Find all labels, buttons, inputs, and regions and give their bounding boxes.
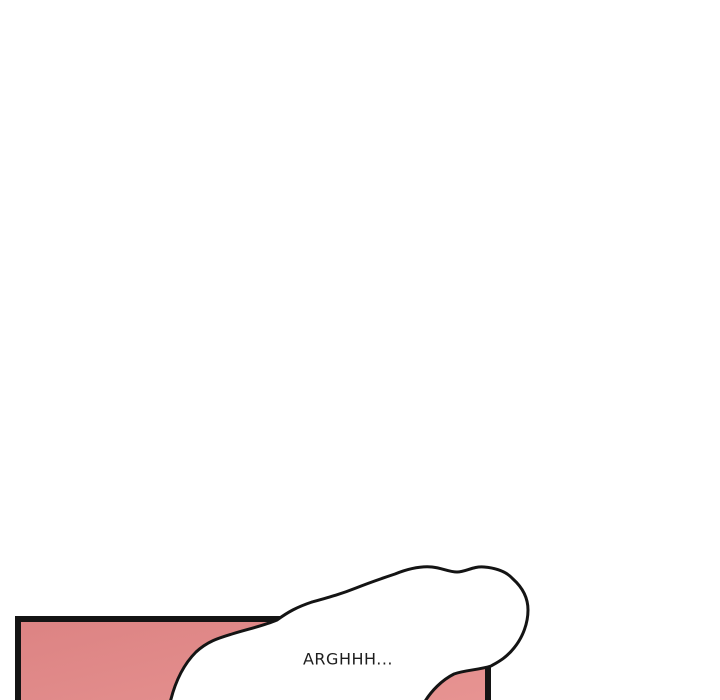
comic-strip-viewport: ARGHHH...	[0, 0, 720, 700]
speech-bubble-text: ARGHHH...	[303, 650, 393, 669]
comic-artwork	[0, 0, 720, 700]
